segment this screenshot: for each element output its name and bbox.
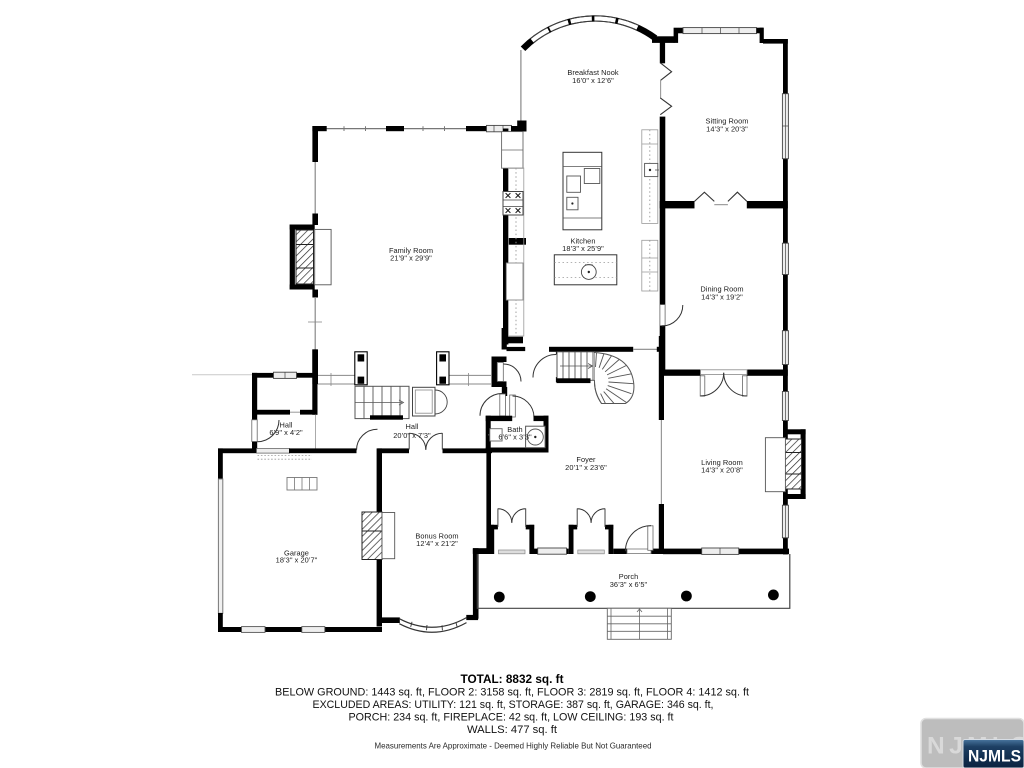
svg-text:14’3" x 20’8": 14’3" x 20’8" (701, 466, 743, 475)
svg-text:21’9" x 29’9": 21’9" x 29’9" (390, 254, 432, 263)
svg-text:20’0" x 7’3": 20’0" x 7’3" (393, 431, 431, 440)
svg-text:18’3" x 20’7": 18’3" x 20’7" (276, 556, 318, 565)
svg-text:6’9" x 4’2": 6’9" x 4’2" (269, 428, 303, 437)
svg-text:BELOW GROUND: 1443 sq. ft, FLO: BELOW GROUND: 1443 sq. ft, FLOOR 2: 3158… (275, 686, 750, 698)
svg-text:14’3" x 20’3": 14’3" x 20’3" (706, 125, 748, 134)
svg-text:NJMLS: NJMLS (968, 747, 1021, 766)
svg-text:14’3" x 19’2": 14’3" x 19’2" (701, 293, 743, 302)
svg-text:WALLS: 477 sq. ft: WALLS: 477 sq. ft (467, 724, 558, 736)
svg-text:20’1" x 23’6": 20’1" x 23’6" (565, 463, 607, 472)
svg-text:16’0" x 12’6": 16’0" x 12’6" (572, 76, 614, 85)
svg-text:18’3" x 25’9": 18’3" x 25’9" (562, 244, 604, 253)
svg-text:12’4" x 21’2": 12’4" x 21’2" (416, 539, 458, 548)
svg-text:6’6" x 3’3": 6’6" x 3’3" (498, 433, 532, 442)
svg-text:TOTAL: 8832 sq. ft: TOTAL: 8832 sq. ft (461, 673, 564, 686)
svg-text:Measurements Are Approximate -: Measurements Are Approximate - Deemed Hi… (375, 741, 652, 751)
svg-text:PORCH: 234 sq. ft, FIREPLACE:: PORCH: 234 sq. ft, FIREPLACE: 42 sq. ft,… (349, 712, 675, 724)
svg-text:36’3" x 6’5": 36’3" x 6’5" (610, 580, 648, 589)
svg-text:EXCLUDED AREAS: UTILITY: 121 s: EXCLUDED AREAS: UTILITY: 121 sq. ft, STO… (313, 699, 714, 711)
